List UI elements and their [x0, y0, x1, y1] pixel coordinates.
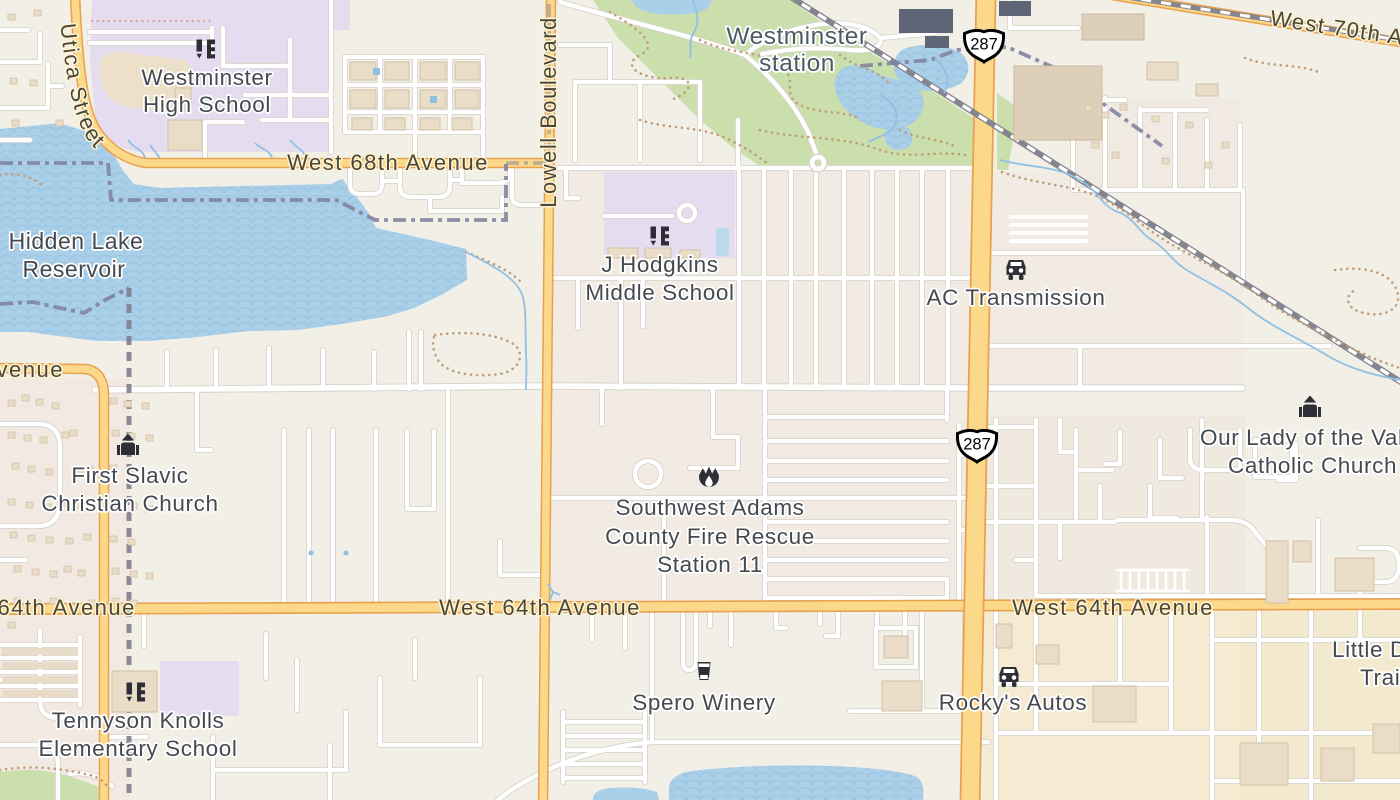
svg-text:Lowell Boulevard: Lowell Boulevard [536, 16, 561, 208]
svg-text:Rocky's Autos: Rocky's Autos [939, 690, 1087, 715]
svg-text:J Hodgkins: J Hodgkins [601, 252, 718, 277]
svg-text:AC Transmission: AC Transmission [926, 285, 1105, 310]
svg-text:Hidden Lake: Hidden Lake [9, 228, 144, 254]
svg-text:West 64th Avenue: West 64th Avenue [0, 595, 136, 620]
svg-text:Elementary School: Elementary School [38, 736, 237, 761]
svg-text:Westminster: Westminster [141, 65, 272, 90]
svg-text:West 68th Avenue: West 68th Avenue [287, 150, 489, 175]
svg-text:First Slavic: First Slavic [71, 463, 188, 488]
svg-text:station: station [759, 50, 835, 77]
svg-text:Westminster: Westminster [726, 23, 867, 50]
svg-text:Catholic Church: Catholic Church [1228, 453, 1397, 478]
svg-text:Southwest Adams: Southwest Adams [615, 495, 804, 520]
svg-text:West 66th Avenue: West 66th Avenue [0, 357, 64, 382]
svg-text:Tennyson Knolls: Tennyson Knolls [52, 708, 225, 733]
svg-text:Reservoir: Reservoir [23, 256, 126, 282]
svg-text:Middle School: Middle School [585, 280, 734, 305]
svg-text:West 64th Avenue: West 64th Avenue [439, 595, 641, 620]
svg-text:High School: High School [143, 92, 271, 117]
svg-text:Trail: Trail [1360, 665, 1400, 690]
svg-text:Our Lady of the Valley: Our Lady of the Valley [1200, 425, 1400, 450]
svg-text:Station 11: Station 11 [657, 552, 763, 577]
svg-text:West 64th Avenue: West 64th Avenue [1012, 595, 1214, 620]
svg-text:Spero Winery: Spero Winery [632, 690, 776, 715]
svg-text:Christian Church: Christian Church [41, 491, 218, 516]
svg-text:County Fire Rescue: County Fire Rescue [605, 524, 815, 549]
svg-text:Little Dry: Little Dry [1332, 637, 1400, 662]
